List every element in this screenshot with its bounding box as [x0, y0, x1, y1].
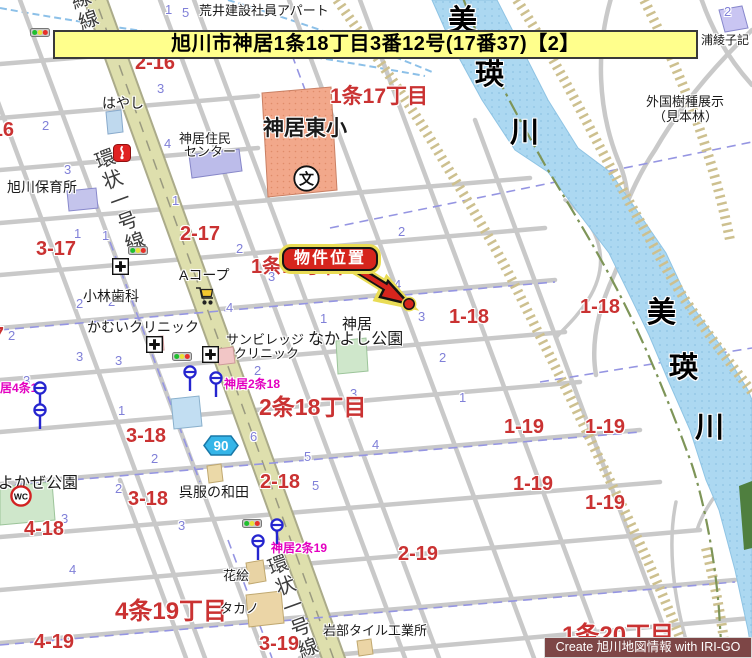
kamui-higashi-school-building [262, 87, 337, 197]
clinic-building-2 [217, 347, 235, 365]
property-location-callout: 物件位置 [282, 247, 378, 271]
hanae-building [246, 560, 266, 584]
nakayoshi-park [336, 338, 368, 374]
hoikusho-building [67, 188, 98, 211]
clinic-building-1 [150, 336, 164, 351]
map-viewport: 1条17丁目1条18丁目2条18丁目4条19丁目1条20丁目2-163-162-… [0, 0, 752, 658]
base-map [0, 0, 752, 658]
soyokaze-park [0, 482, 55, 525]
address-banner: 旭川市神居1条18丁目3番12号(17番37)【2】 [53, 30, 698, 59]
hayashi-building [106, 110, 123, 134]
tan-building-1 [207, 464, 223, 483]
mid-blue-building [171, 396, 202, 429]
credit-bar: Create 旭川地図情報 with IRI-GO [544, 637, 752, 658]
iwabe-building [357, 639, 373, 656]
takano-building [246, 591, 284, 627]
